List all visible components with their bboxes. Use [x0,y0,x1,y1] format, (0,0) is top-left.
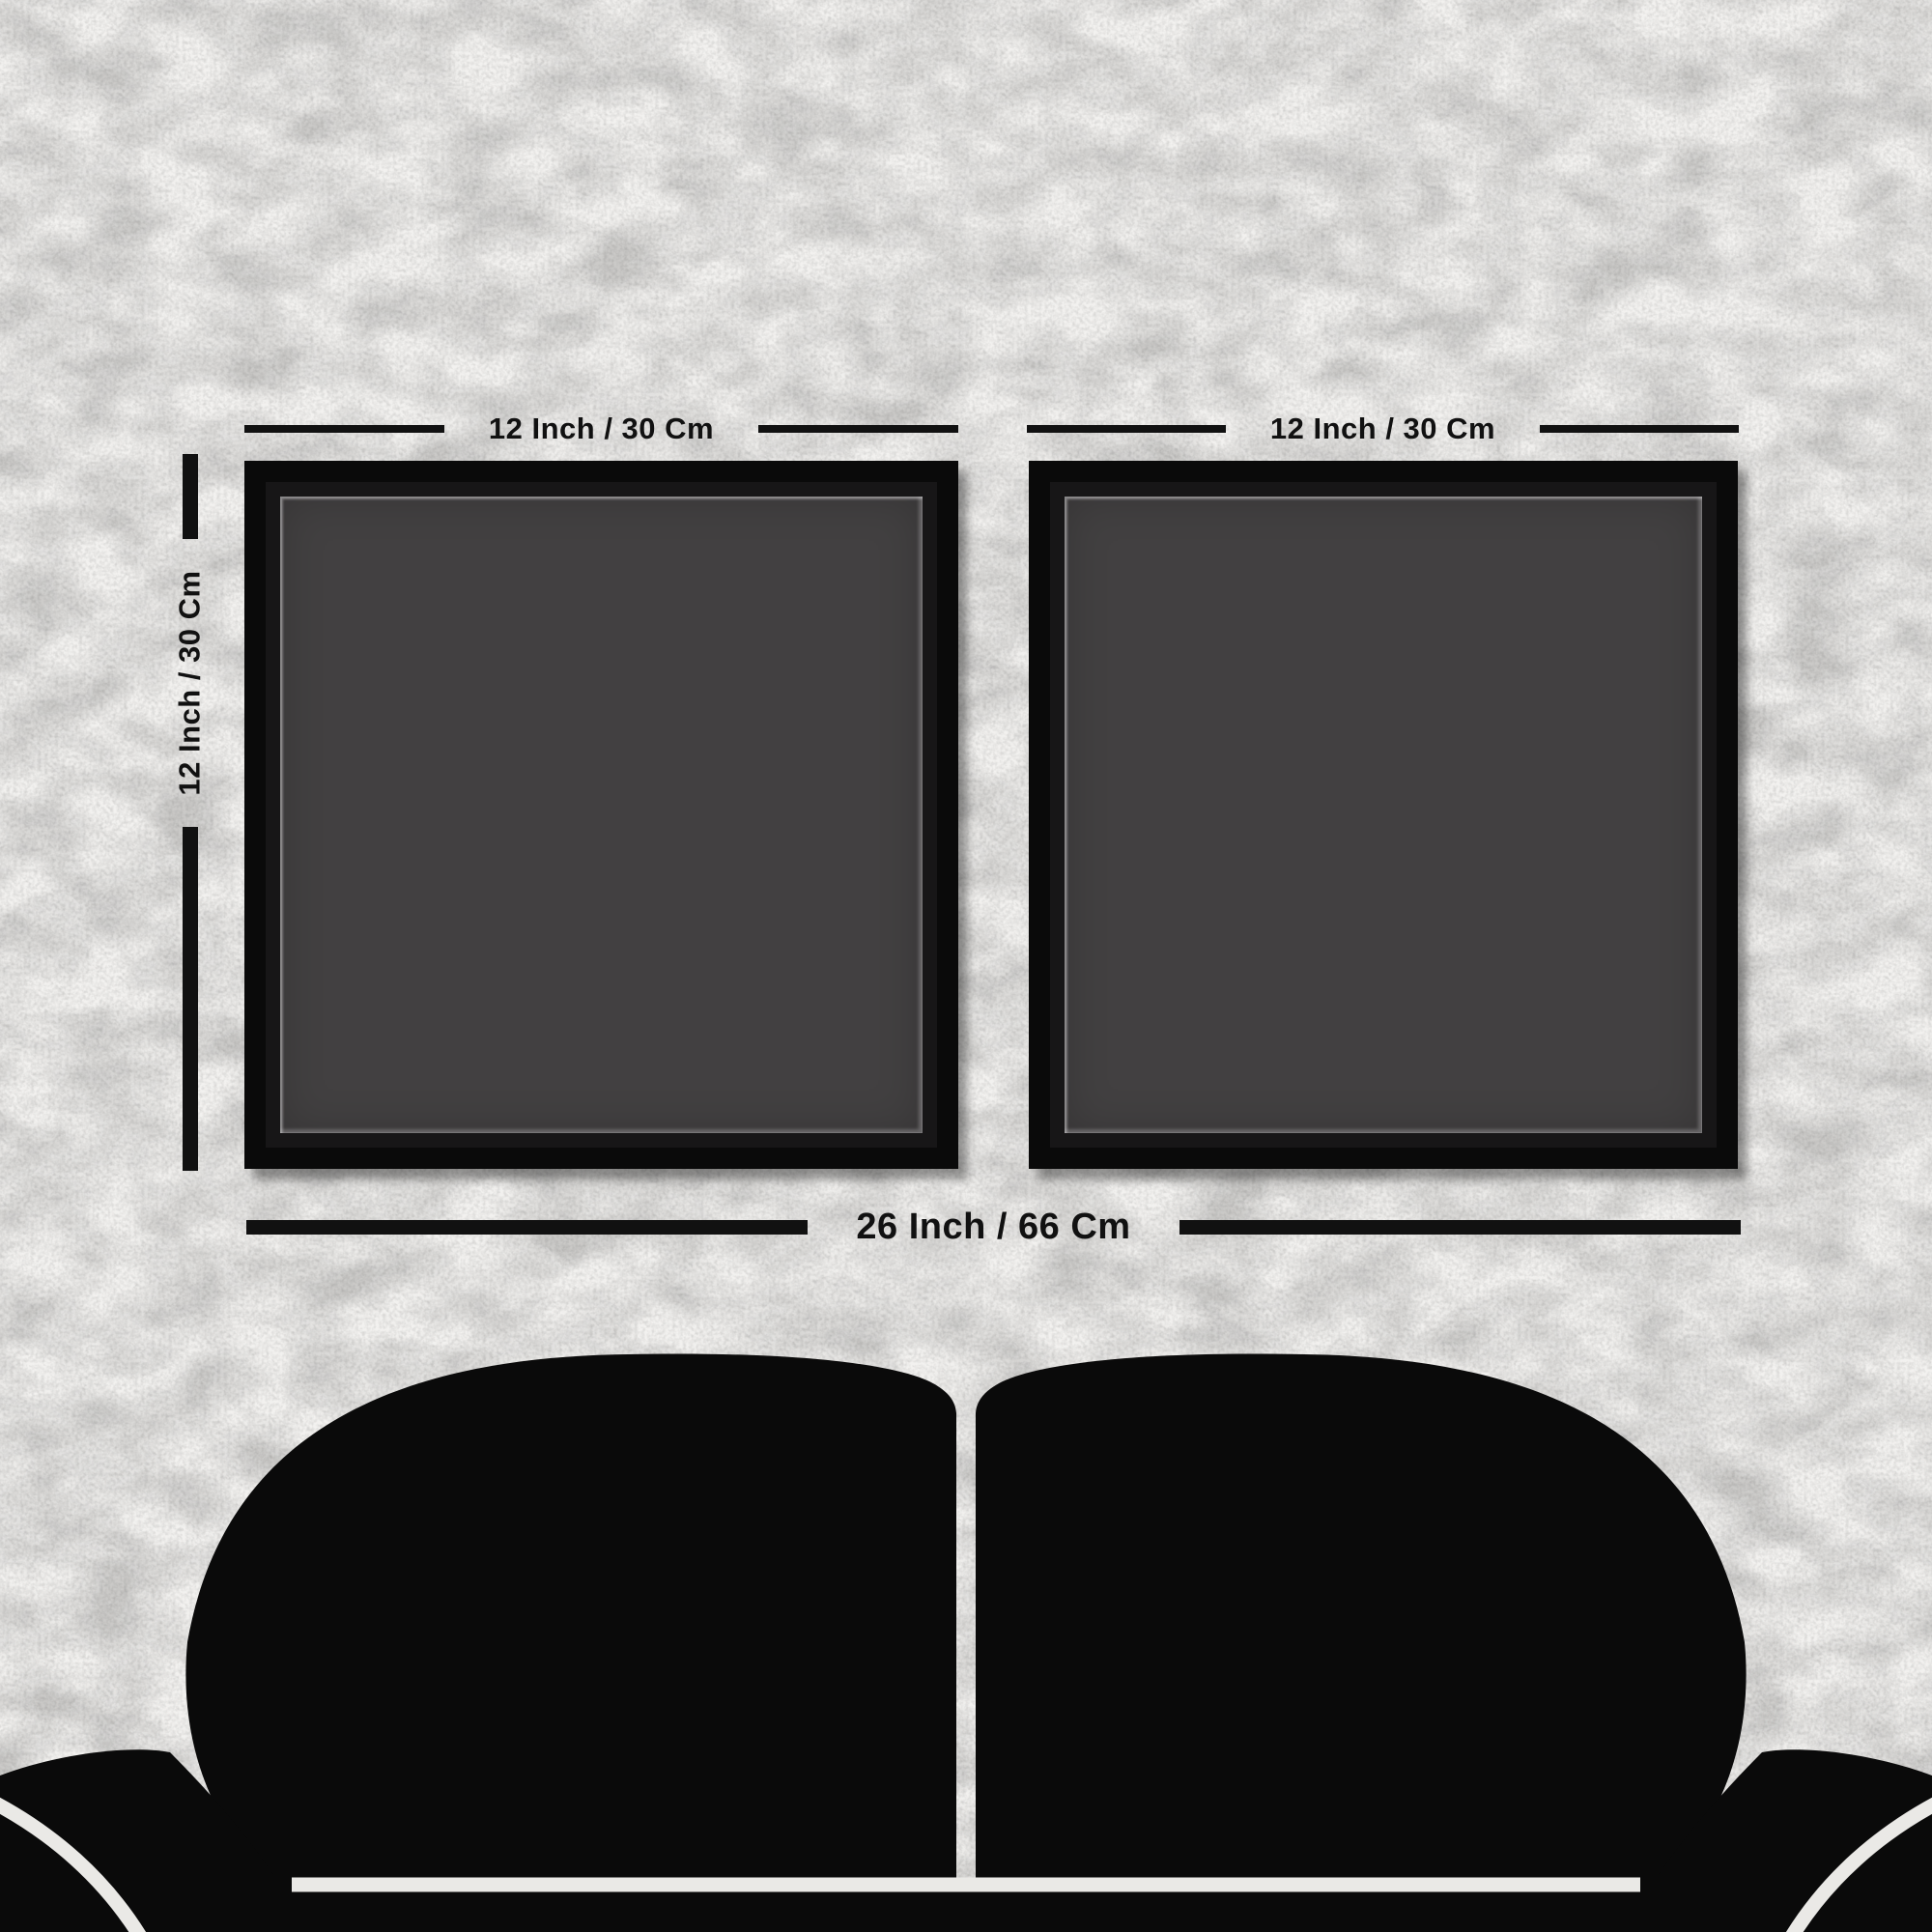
couch-back-cushion-right [976,1353,1747,1898]
couch-back-cushion-left [185,1353,956,1898]
product-dimension-diagram: 12 Inch / 30 Cm 12 Inch / 30 Cm 12 Inch … [0,0,1932,1932]
couch-silhouette [0,0,1932,1932]
